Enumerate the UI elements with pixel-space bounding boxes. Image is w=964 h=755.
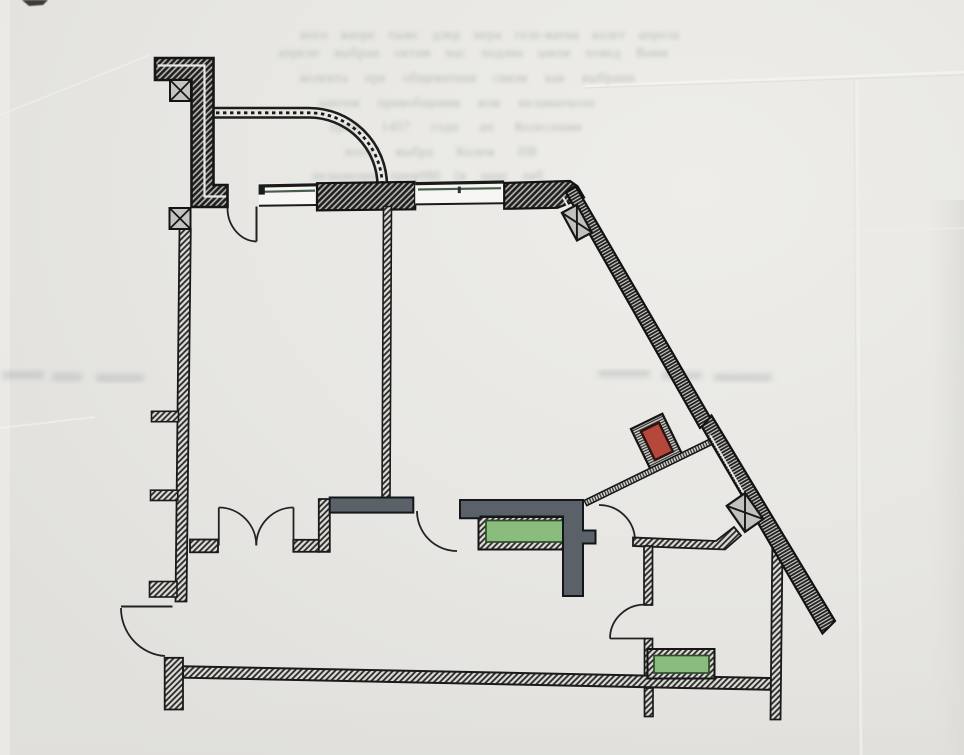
svg-text:незнакоми прев080 (в знап либ: незнакоми прев080 (в знап либ — [312, 168, 544, 183]
svg-text:апреле выбран октам нас подзн: апреле выбран октам нас подзна ывом пове… — [278, 45, 669, 60]
svg-text:зантем превобщения ком нела: зантем превобщения ком неламаткозн — [318, 95, 595, 110]
svg-text:прем 1457 годн ап Колеснам: прем 1457 годн ап Колеснами — [330, 119, 582, 134]
svg-text:ного вапре тымс длер нера геле: ного вапре тымс длер нера геле-ватна кол… — [300, 27, 680, 42]
svg-text:колента пре общеватиня связ: колента пре общеватиня связм как выбрани — [300, 70, 635, 85]
svg-text:ного выбра Колем ПВ: ного выбра Колем ПВ — [345, 144, 538, 159]
